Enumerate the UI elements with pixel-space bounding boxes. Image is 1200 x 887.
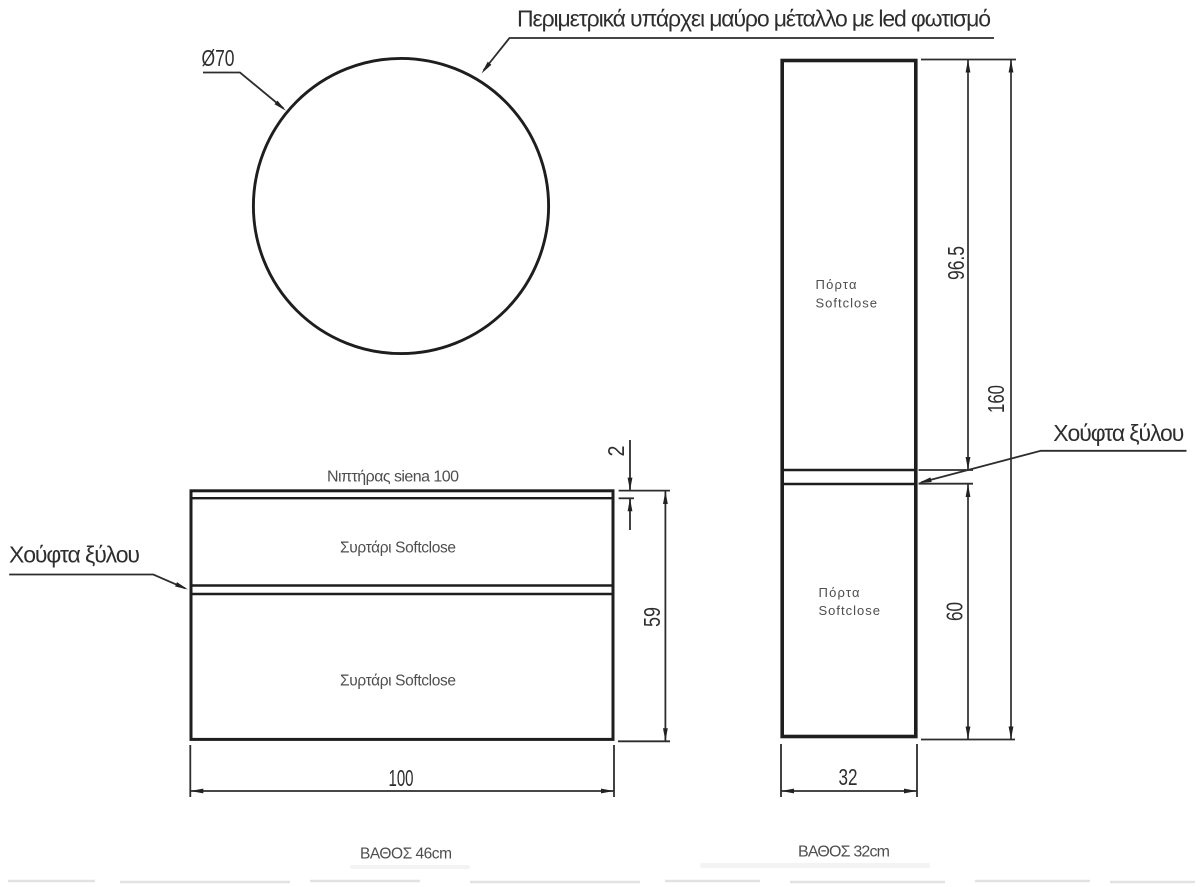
svg-text:Χούφτα ξύλου: Χούφτα ξύλου (9, 542, 140, 568)
svg-text:59: 59 (639, 607, 665, 627)
svg-text:Softclose: Softclose (819, 603, 881, 618)
svg-text:Πόρτα: Πόρτα (819, 585, 860, 600)
svg-text:Softclose: Softclose (816, 296, 878, 311)
svg-text:96.5: 96.5 (943, 246, 969, 280)
svg-text:60: 60 (942, 602, 968, 621)
svg-text:Νιπτήρας siena 100: Νιπτήρας siena 100 (327, 469, 459, 486)
svg-text:2: 2 (603, 446, 629, 457)
svg-text:Ø70: Ø70 (202, 45, 235, 71)
svg-text:ΒΑΘΟΣ 32cm: ΒΑΘΟΣ 32cm (798, 844, 890, 861)
svg-text:Συρτάρι Softclose: Συρτάρι Softclose (340, 673, 456, 690)
svg-text:32: 32 (839, 764, 858, 790)
svg-text:Περιμετρικά υπάρχει μαύρο μέτα: Περιμετρικά υπάρχει μαύρο μέταλλο με led… (517, 6, 991, 32)
svg-text:Συρτάρι Softclose: Συρτάρι Softclose (340, 540, 456, 557)
svg-text:160: 160 (983, 385, 1009, 413)
svg-text:100: 100 (389, 765, 414, 791)
svg-text:Χούφτα ξύλου: Χούφτα ξύλου (1053, 420, 1184, 446)
svg-text:Πόρτα: Πόρτα (816, 277, 857, 292)
svg-text:ΒΑΘΟΣ 46cm: ΒΑΘΟΣ 46cm (360, 846, 452, 863)
